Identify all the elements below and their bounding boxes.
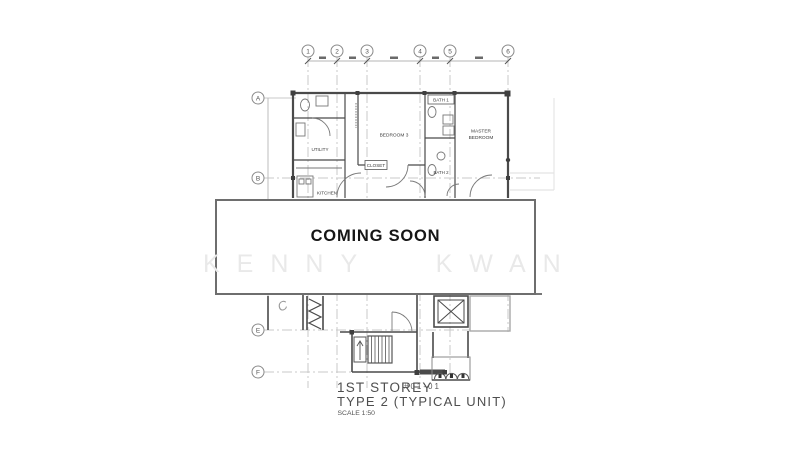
grid-bubble-2: 2 — [335, 48, 339, 55]
dimension-marks — [305, 57, 511, 65]
label-kitchen: KITCHEN — [317, 191, 337, 196]
grid-bubble-1: 1 — [306, 48, 310, 55]
grid-bubble-A: A — [256, 95, 261, 102]
grid-bubble-5: 5 — [448, 48, 452, 55]
label-bath1: BATH 1 — [433, 98, 449, 103]
title-scale: SCALE 1:50 — [338, 410, 376, 417]
elevator-shaft — [434, 296, 468, 327]
label-master-2: BEDROOM — [469, 135, 494, 141]
grid-bubble-B: B — [256, 175, 260, 182]
grid-bubble-F: F — [256, 369, 260, 376]
label-master-1: MASTER — [471, 129, 492, 135]
label-closet: CLOSET — [367, 163, 386, 168]
label-utility: UTILITY — [311, 147, 328, 152]
grid-bubble-4: 4 — [418, 48, 422, 55]
label-bath2: BATH 2 — [433, 170, 449, 175]
title-unit-no: #01-01 — [404, 382, 441, 391]
coming-soon-text: COMING SOON — [217, 227, 534, 246]
title-block: 1ST STOREY #01-01 TYPE 2 (TYPICAL UNIT) … — [337, 380, 507, 417]
annex-outline — [470, 296, 510, 331]
scallop-fixtures — [432, 357, 470, 380]
label-bedroom: BEDROOM 3 — [380, 133, 409, 139]
grid-bubble-3: 3 — [365, 48, 369, 55]
title-type: TYPE 2 (TYPICAL UNIT) — [337, 394, 507, 409]
handwritten-mark: C — [275, 297, 290, 315]
coming-soon-overlay: COMING SOON — [215, 199, 536, 295]
slide-canvas: 1 2 3 4 5 6 A B E F UTILITY BEDROOM 3 BA… — [0, 0, 800, 450]
grid-bubble-E: E — [256, 327, 261, 334]
grid-bubble-6: 6 — [506, 48, 510, 55]
staircase — [354, 336, 392, 363]
